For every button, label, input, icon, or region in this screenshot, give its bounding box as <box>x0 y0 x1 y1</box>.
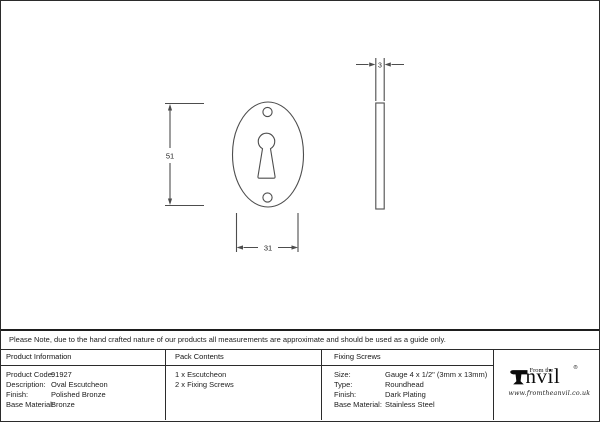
spec-value: Oval Escutcheon <box>51 380 108 390</box>
pack-contents-header: Pack Contents <box>166 350 321 366</box>
table-row: Description: Oval Escutcheon <box>1 380 165 390</box>
spec-value: Roundhead <box>385 380 424 390</box>
spec-label: Product Code: <box>6 370 51 380</box>
fixing-screws-column: Fixing Screws Size: Gauge 4 x 1/2" (3mm … <box>322 350 494 420</box>
anvil-logo: From the nvil ® www.fromtheanvil.co.uk <box>509 364 585 402</box>
spec-label: Finish: <box>334 390 385 400</box>
spec-sheet: 51 31 3 Please Note, due to the hand cra… <box>0 0 600 422</box>
spec-label: Size: <box>334 370 385 380</box>
table-row: Product Code: 91927 <box>1 370 165 380</box>
arrow-left-icon <box>237 245 244 249</box>
spec-value: Gauge 4 x 1/2" (3mm x 13mm) <box>385 370 487 380</box>
spec-value: Dark Plating <box>385 390 426 400</box>
table-row: Base Material: Stainless Steel <box>322 400 493 410</box>
product-information-header: Product Information <box>1 350 165 366</box>
side-profile-outline <box>376 103 384 209</box>
registered-trademark-icon: ® <box>574 365 578 371</box>
arrow-in-left-icon <box>385 62 391 66</box>
arrow-down-icon <box>168 199 172 206</box>
spec-label: Base Material: <box>6 400 51 410</box>
screw-hole-bottom <box>263 193 272 202</box>
arrow-right-icon <box>292 245 299 249</box>
height-dimension-label: 51 <box>166 152 174 161</box>
table-row: Type: Roundhead <box>322 380 493 390</box>
table-row: Size: Gauge 4 x 1/2" (3mm x 13mm) <box>322 370 493 380</box>
disclaimer-note: Please Note, due to the hand crafted nat… <box>1 329 599 350</box>
spec-label: Finish: <box>6 390 51 400</box>
spec-value: Polished Bronze <box>51 390 106 400</box>
spec-label: Type: <box>334 380 385 390</box>
pack-item: 2 x Fixing Screws <box>166 380 321 390</box>
technical-drawing: 51 31 3 <box>1 1 598 329</box>
spec-label: Description: <box>6 380 51 390</box>
spec-value: Bronze <box>51 400 75 410</box>
thickness-dimension-label: 3 <box>378 62 382 69</box>
table-row: Finish: Dark Plating <box>322 390 493 400</box>
keyhole-outline <box>258 133 275 178</box>
brand-logo-cell: From the nvil ® www.fromtheanvil.co.uk <box>494 350 599 420</box>
pack-item: 1 x Escutcheon <box>166 370 321 380</box>
screw-hole-top <box>263 107 272 116</box>
table-row: Base Material: Bronze <box>1 400 165 410</box>
arrow-in-right-icon <box>369 62 375 66</box>
product-information-column: Product Information Product Code: 91927 … <box>1 350 166 420</box>
spec-value: 91927 <box>51 370 72 380</box>
fixing-screws-header: Fixing Screws <box>322 350 493 366</box>
width-dimension-label: 31 <box>264 244 272 253</box>
spec-label: Base Material: <box>334 400 385 410</box>
logo-brand-text: nvil <box>526 364 561 388</box>
oval-escutcheon-outline <box>233 102 304 207</box>
arrow-up-icon <box>168 104 172 111</box>
pack-contents-column: Pack Contents 1 x Escutcheon 2 x Fixing … <box>166 350 322 420</box>
product-info-table: Product Information Product Code: 91927 … <box>1 350 599 420</box>
logo-website-text: www.fromtheanvil.co.uk <box>509 390 585 397</box>
table-row: Finish: Polished Bronze <box>1 390 165 400</box>
spec-value: Stainless Steel <box>385 400 435 410</box>
